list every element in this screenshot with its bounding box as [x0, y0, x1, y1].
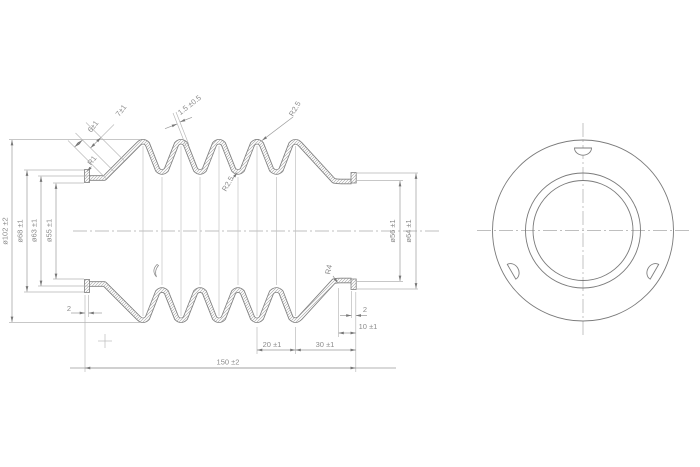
dim-label-10: 10 ±1: [359, 322, 378, 331]
dim-label-7: 7±1: [114, 103, 129, 118]
dim-label-6: 6±1: [86, 119, 101, 134]
dim-label-dia64: ø64 ±1: [404, 219, 413, 242]
center-cross-mark: [98, 334, 112, 348]
right-collar-bead-bottom: [351, 279, 356, 290]
dim-label-2-right: 2: [363, 305, 367, 314]
dim-label-dia102: ø102 ±2: [1, 217, 10, 244]
dimension-labels: ø102 ±2 ø68 ±1 ø63 ±1 ø55 ±1 ø56 ±1 ø64 …: [1, 93, 414, 366]
vent-tab-lower-left: [507, 261, 522, 279]
parting-line-flag: [154, 265, 159, 278]
dim-label-r4: R4: [323, 264, 334, 275]
dim-label-wall: 1.5 ±0.5: [176, 93, 203, 117]
bellows-technical-drawing: ø102 ±2 ø68 ±1 ø63 ±1 ø55 ±1 ø56 ±1 ø64 …: [0, 0, 700, 467]
dim-label-dia68: ø68 ±1: [16, 219, 25, 242]
dim-label-dia63: ø63 ±1: [30, 219, 39, 242]
vent-tab-top: [575, 148, 592, 155]
dim-label-20: 20 ±1: [263, 340, 282, 349]
dim-label-dia56: ø56 ±1: [388, 219, 397, 242]
dim-label-30: 30 ±1: [316, 340, 335, 349]
vent-tab-lower-right: [644, 261, 659, 279]
dim-label-150: 150 ±2: [217, 358, 240, 367]
dim-label-dia55: ø55 ±1: [45, 219, 54, 242]
dim-label-r25-top: R2.5: [287, 100, 303, 118]
end-view: [477, 123, 689, 338]
dim-label-2-left: 2: [67, 304, 71, 313]
dim-label-r1: R1: [86, 154, 99, 167]
cad-drawing-canvas: ø102 ±2 ø68 ±1 ø63 ±1 ø55 ±1 ø56 ±1 ø64 …: [0, 0, 700, 467]
right-collar-bead-top: [351, 173, 356, 184]
section-view: ø102 ±2 ø68 ±1 ø63 ±1 ø55 ±1 ø56 ±1 ø64 …: [1, 93, 443, 372]
dimension-lines: [12, 117, 416, 368]
